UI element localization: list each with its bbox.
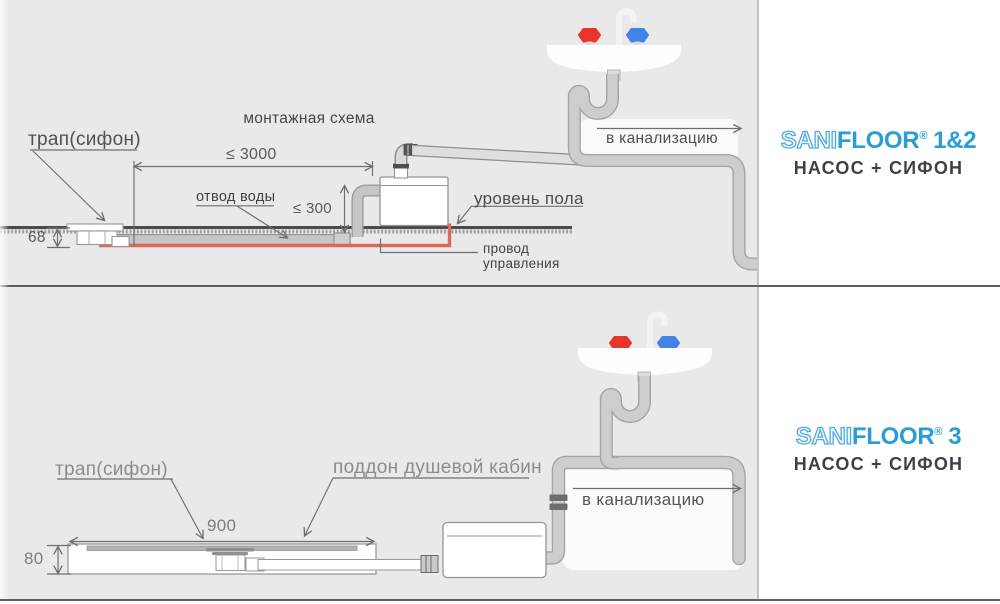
cold-tap-icon-bottom <box>658 337 679 350</box>
trap-label-bottom: трап(сифон) <box>55 459 168 481</box>
hot-tap-icon-bottom <box>610 337 631 350</box>
sanifloor12-wordmark: SANIFLOOR®1&2 <box>757 127 1000 155</box>
sewer-label-top: в канализацию <box>606 130 718 148</box>
pump-unit-bottom <box>443 523 546 578</box>
sanifloor3-logo: SANIFLOOR®3 НАСОС + СИФОН <box>757 423 1000 475</box>
logo-sani-part: SANI <box>781 127 837 154</box>
shower-tray-label: поддон душевой кабин <box>333 457 542 479</box>
sanifloor12-logo: SANIFLOOR®1&2 НАСОС + СИФОН <box>757 127 1000 179</box>
logo-floor-part: FLOOR <box>837 127 920 154</box>
trap-label-top: трап(сифон) <box>28 129 141 151</box>
registered-mark: ® <box>919 130 927 142</box>
logo-model-number: 1&2 <box>933 127 976 154</box>
logo-sani-part-bottom: SANI <box>796 423 852 450</box>
discharge-pipe <box>401 144 583 164</box>
shower-tray <box>68 544 438 574</box>
left-edge-highlight <box>0 0 9 599</box>
sewer-label-bottom: в канализацию <box>582 490 704 510</box>
logo-subtitle-bottom: НАСОС + СИФОН <box>757 454 1000 475</box>
sewer-label-plate-bottom <box>562 462 744 570</box>
control-wire-label: провод управления <box>483 242 560 271</box>
registered-mark-bottom: ® <box>934 426 942 438</box>
hot-tap-icon <box>579 29 600 42</box>
floor-level-label: уровень пола <box>474 189 584 209</box>
sink <box>547 0 681 80</box>
cold-tap-icon <box>627 29 648 42</box>
pump-inlet-connector <box>421 556 438 573</box>
sink-trap-and-sewer-pipe <box>574 74 757 264</box>
control-wire-label-line2: управления <box>483 257 560 272</box>
length-dimension-top: ≤ 3000 <box>226 146 277 164</box>
sanifloor3-schematic-drawing <box>0 287 757 601</box>
tray-outlet-pipe <box>258 560 422 571</box>
sink-basin <box>547 45 681 72</box>
width-dimension-bottom: 900 <box>207 516 236 536</box>
sanifloor3-wordmark: SANIFLOOR®3 <box>757 423 1000 451</box>
height-dimension-bottom: 80 <box>24 549 44 569</box>
top-diagram-title: монтажная схема <box>243 110 375 128</box>
water-outlet-label: отвод воды <box>196 189 275 205</box>
height-dimension-top: ≤ 300 <box>293 200 332 217</box>
tray-siphon-flange <box>206 548 254 552</box>
logo-floor-part-bottom: FLOOR <box>852 423 935 450</box>
installation-diagram-sheet: монтажная схема трап(сифон) ≤ 3000 отвод… <box>0 0 1000 604</box>
sink-basin-bottom <box>578 348 712 375</box>
control-wire-label-line1: провод <box>483 242 560 257</box>
sink-trap-bottom <box>606 376 644 463</box>
pump-unit <box>380 164 448 226</box>
logo-subtitle: НАСОС + СИФОН <box>757 158 1000 179</box>
depth-dimension-top: 68 <box>28 229 46 247</box>
logo-model-number-bottom: 3 <box>948 423 961 450</box>
sink-bottom <box>578 315 712 383</box>
